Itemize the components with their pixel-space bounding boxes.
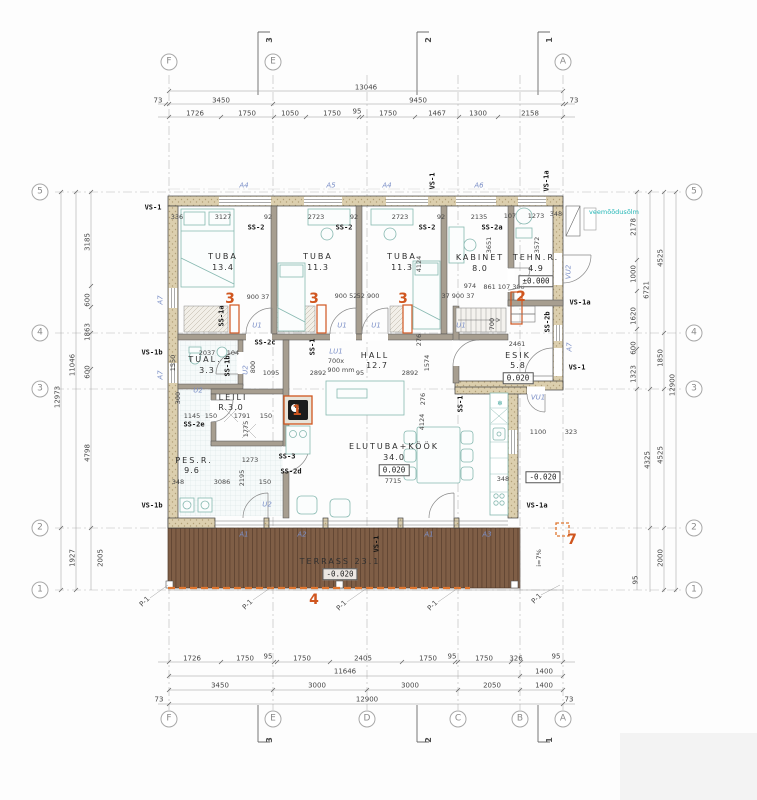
- lounge-chairs: [297, 496, 350, 517]
- desk-tuba3: [371, 209, 413, 240]
- bed-tuba1: [181, 209, 234, 287]
- tv-bench-hall: [326, 381, 404, 415]
- entry-steps: [511, 306, 535, 322]
- sauna-drain-marks: [224, 408, 256, 438]
- kitchen-counter: [490, 393, 508, 515]
- floor-plan-page: FEAFEDCBA5432154321321321130467334509450…: [0, 0, 757, 800]
- sink-tual: [217, 347, 227, 357]
- boiler-tehnr: [516, 208, 532, 238]
- page-corner-block: [620, 733, 757, 800]
- desk-kabinet: [449, 227, 476, 263]
- south-glazing: [215, 521, 508, 525]
- wardrobes: [184, 306, 506, 332]
- bed-tuba3: [413, 261, 440, 329]
- floor-plan-drawing: [0, 0, 757, 800]
- bed-tuba2: [278, 263, 305, 331]
- dining-set: [404, 427, 473, 483]
- desk-tuba2: [308, 209, 350, 240]
- fireplace-stove: [284, 396, 312, 424]
- detail-7-marker-box: [556, 523, 569, 536]
- cabinet-ss3: [286, 426, 310, 454]
- water-meter-unit: [566, 206, 596, 236]
- terrace-deck: [150, 523, 569, 602]
- floor-tiles: [180, 341, 283, 516]
